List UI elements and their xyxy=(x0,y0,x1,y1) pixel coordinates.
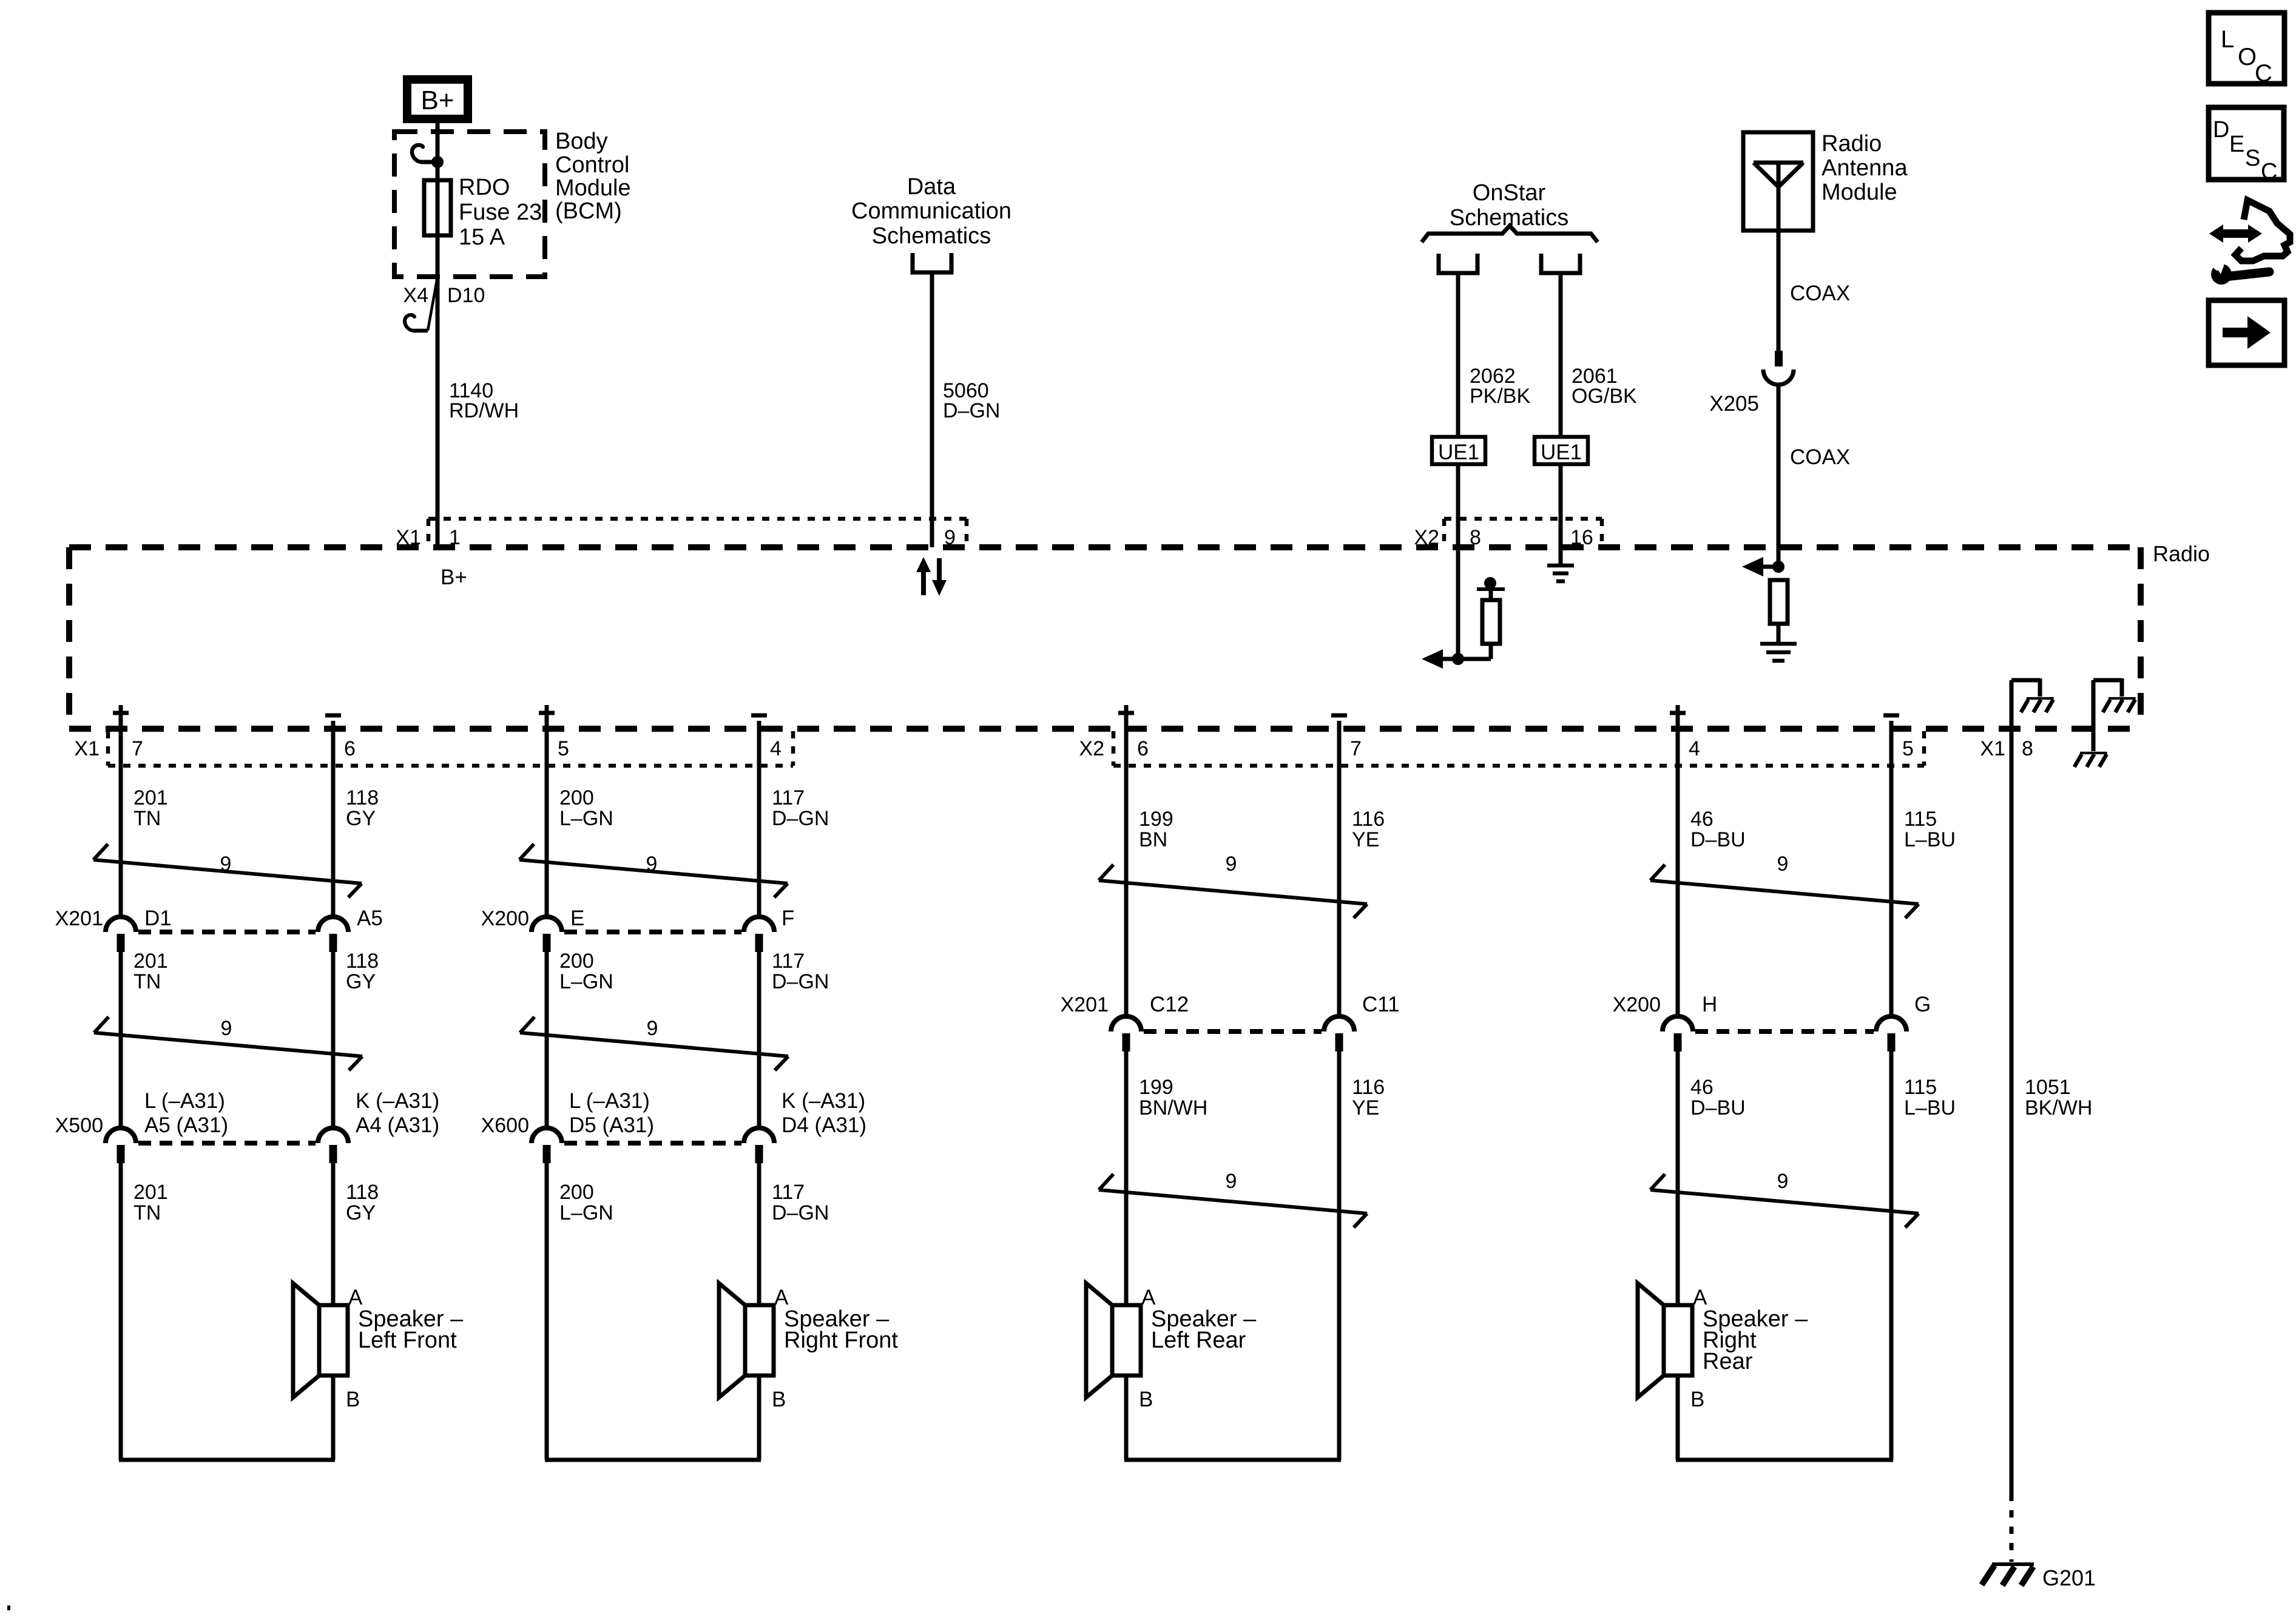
svg-text:46: 46 xyxy=(1690,808,1714,831)
svg-text:K (–A31): K (–A31) xyxy=(782,1089,865,1113)
svg-text:RD/WH: RD/WH xyxy=(449,399,519,422)
svg-text:G: G xyxy=(1914,993,1931,1016)
svg-text:201: 201 xyxy=(133,950,168,973)
svg-text:116: 116 xyxy=(1352,1076,1385,1099)
svg-text:Module: Module xyxy=(555,175,631,201)
svg-text:L–BU: L–BU xyxy=(1904,828,1956,851)
svg-text:X200: X200 xyxy=(1613,993,1661,1016)
svg-text:UE1: UE1 xyxy=(1541,441,1582,464)
svg-text:Left Rear: Left Rear xyxy=(1151,1328,1246,1353)
svg-text:OnStar: OnStar xyxy=(1473,180,1546,206)
svg-text:L–GN: L–GN xyxy=(559,807,613,830)
svg-text:1: 1 xyxy=(449,526,461,549)
svg-text:X1: X1 xyxy=(74,737,100,760)
svg-text:4: 4 xyxy=(1689,737,1700,760)
svg-text:O: O xyxy=(2238,44,2257,70)
svg-text:B+: B+ xyxy=(420,86,454,115)
svg-text:199: 199 xyxy=(1139,808,1173,831)
svg-text:X2: X2 xyxy=(1079,737,1104,760)
svg-text:199: 199 xyxy=(1139,1076,1173,1099)
svg-text:X205: X205 xyxy=(1709,392,1759,416)
svg-text:D–BU: D–BU xyxy=(1690,1096,1746,1119)
svg-text:9: 9 xyxy=(220,852,232,876)
svg-text:X200: X200 xyxy=(481,907,529,930)
svg-text:Body: Body xyxy=(555,129,608,154)
svg-text:YE: YE xyxy=(1352,1096,1379,1119)
svg-text:X201: X201 xyxy=(1061,993,1109,1016)
svg-text:118: 118 xyxy=(346,786,379,809)
svg-text:TN: TN xyxy=(133,807,161,830)
svg-text:9: 9 xyxy=(1226,1170,1237,1193)
svg-text:GY: GY xyxy=(346,970,376,993)
svg-text:D–GN: D–GN xyxy=(772,970,829,993)
svg-text:15 A: 15 A xyxy=(459,224,505,250)
svg-text:BK/WH: BK/WH xyxy=(2025,1096,2092,1119)
svg-text:D1: D1 xyxy=(144,906,172,930)
svg-text:BN: BN xyxy=(1139,828,1167,851)
svg-text:B: B xyxy=(1139,1388,1153,1411)
svg-text:L–GN: L–GN xyxy=(559,970,613,993)
svg-text:X600: X600 xyxy=(481,1114,529,1137)
svg-text:L (–A31): L (–A31) xyxy=(144,1089,225,1113)
svg-text:B: B xyxy=(772,1388,786,1411)
svg-text:BN/WH: BN/WH xyxy=(1139,1096,1207,1119)
svg-text:G201: G201 xyxy=(2042,1565,2096,1590)
svg-text:L–GN: L–GN xyxy=(559,1201,613,1224)
svg-text:B: B xyxy=(346,1388,360,1411)
svg-text:Radio: Radio xyxy=(1822,131,1882,157)
svg-text:E: E xyxy=(2229,132,2244,157)
svg-text:6: 6 xyxy=(1137,737,1149,760)
svg-text:D–BU: D–BU xyxy=(1690,828,1746,851)
svg-text:Schematics: Schematics xyxy=(872,223,991,249)
svg-text:118: 118 xyxy=(346,950,379,973)
svg-text:118: 118 xyxy=(346,1181,379,1204)
svg-text:200: 200 xyxy=(559,1181,594,1204)
svg-text:TN: TN xyxy=(133,1201,161,1224)
svg-text:L: L xyxy=(2221,26,2234,53)
svg-text:OG/BK: OG/BK xyxy=(1572,385,1637,408)
svg-text:46: 46 xyxy=(1690,1076,1714,1099)
svg-text:TN: TN xyxy=(133,970,161,993)
svg-text:4: 4 xyxy=(770,737,782,760)
svg-text:115: 115 xyxy=(1904,808,1937,831)
svg-text:RDO: RDO xyxy=(459,175,510,200)
svg-text:X201: X201 xyxy=(55,907,103,930)
svg-text:X1: X1 xyxy=(396,526,421,549)
svg-text:8: 8 xyxy=(2022,737,2033,760)
svg-text:GY: GY xyxy=(346,807,376,830)
svg-text:117: 117 xyxy=(772,786,805,809)
svg-text:16: 16 xyxy=(1570,526,1593,549)
svg-text:A4 (A31): A4 (A31) xyxy=(356,1113,439,1137)
svg-text:GY: GY xyxy=(346,1201,376,1224)
svg-text:9: 9 xyxy=(221,1017,232,1040)
svg-text:7: 7 xyxy=(132,737,143,760)
svg-text:B+: B+ xyxy=(441,565,467,589)
svg-text:A5: A5 xyxy=(357,906,383,930)
svg-text:117: 117 xyxy=(772,950,805,973)
svg-text:9: 9 xyxy=(1226,852,1237,876)
svg-text:1051: 1051 xyxy=(2025,1076,2071,1099)
svg-text:Fuse 23: Fuse 23 xyxy=(459,200,542,225)
svg-text:D: D xyxy=(2213,117,2229,143)
svg-text:L (–A31): L (–A31) xyxy=(569,1089,650,1113)
svg-text:(BCM): (BCM) xyxy=(555,198,622,224)
svg-text:UE1: UE1 xyxy=(1438,441,1479,464)
svg-text:COAX: COAX xyxy=(1790,282,1850,305)
svg-text:116: 116 xyxy=(1352,808,1385,831)
svg-text:D4 (A31): D4 (A31) xyxy=(782,1113,866,1137)
svg-text:5: 5 xyxy=(558,737,569,760)
svg-text:9: 9 xyxy=(1777,852,1789,876)
svg-text:9: 9 xyxy=(944,526,956,549)
svg-text:L–BU: L–BU xyxy=(1904,1096,1956,1119)
svg-text:201: 201 xyxy=(133,1181,168,1204)
svg-text:D10: D10 xyxy=(447,284,485,307)
svg-text:H: H xyxy=(1702,993,1717,1016)
svg-text:115: 115 xyxy=(1904,1076,1937,1099)
svg-text:9: 9 xyxy=(647,1017,658,1040)
svg-text:K (–A31): K (–A31) xyxy=(356,1089,439,1113)
svg-text:Rear: Rear xyxy=(1703,1349,1753,1374)
svg-text:B: B xyxy=(1690,1388,1704,1411)
svg-text:X500: X500 xyxy=(55,1114,103,1137)
svg-text:Module: Module xyxy=(1822,180,1897,205)
svg-text:201: 201 xyxy=(133,786,168,809)
svg-text:F: F xyxy=(782,906,794,930)
svg-text:9: 9 xyxy=(646,852,658,876)
svg-text:D–GN: D–GN xyxy=(772,807,829,830)
svg-text:Left Front: Left Front xyxy=(358,1328,457,1353)
svg-text:6: 6 xyxy=(344,737,356,760)
svg-text:Radio: Radio xyxy=(2153,541,2210,566)
svg-text:S: S xyxy=(2245,146,2260,171)
svg-text:C11: C11 xyxy=(1362,993,1400,1016)
svg-text:E: E xyxy=(570,906,584,930)
svg-text:C: C xyxy=(2255,60,2272,87)
svg-text:Right Front: Right Front xyxy=(784,1328,898,1353)
svg-text:5: 5 xyxy=(1902,737,1914,760)
svg-text:7: 7 xyxy=(1350,737,1362,760)
svg-text:C: C xyxy=(2261,159,2277,184)
svg-text:117: 117 xyxy=(772,1181,805,1204)
svg-text:200: 200 xyxy=(559,950,594,973)
svg-text:X2: X2 xyxy=(1414,526,1439,549)
svg-text:200: 200 xyxy=(559,786,594,809)
svg-text:A5 (A31): A5 (A31) xyxy=(144,1113,228,1137)
svg-text:C12: C12 xyxy=(1150,993,1189,1016)
svg-text:D5 (A31): D5 (A31) xyxy=(569,1113,654,1137)
svg-text:9: 9 xyxy=(1777,1170,1789,1193)
svg-text:X1: X1 xyxy=(1980,737,2005,760)
svg-text:8: 8 xyxy=(1470,526,1481,549)
svg-text:D–GN: D–GN xyxy=(943,399,1000,422)
svg-text:X4: X4 xyxy=(403,284,428,307)
svg-text:Control: Control xyxy=(555,152,630,178)
svg-text:COAX: COAX xyxy=(1790,445,1850,469)
svg-text:Antenna: Antenna xyxy=(1822,155,1908,181)
svg-text:PK/BK: PK/BK xyxy=(1470,385,1530,408)
svg-text:Communication: Communication xyxy=(851,198,1011,224)
svg-text:YE: YE xyxy=(1352,828,1379,851)
svg-text:D–GN: D–GN xyxy=(772,1201,829,1224)
svg-text:Data: Data xyxy=(907,174,956,200)
